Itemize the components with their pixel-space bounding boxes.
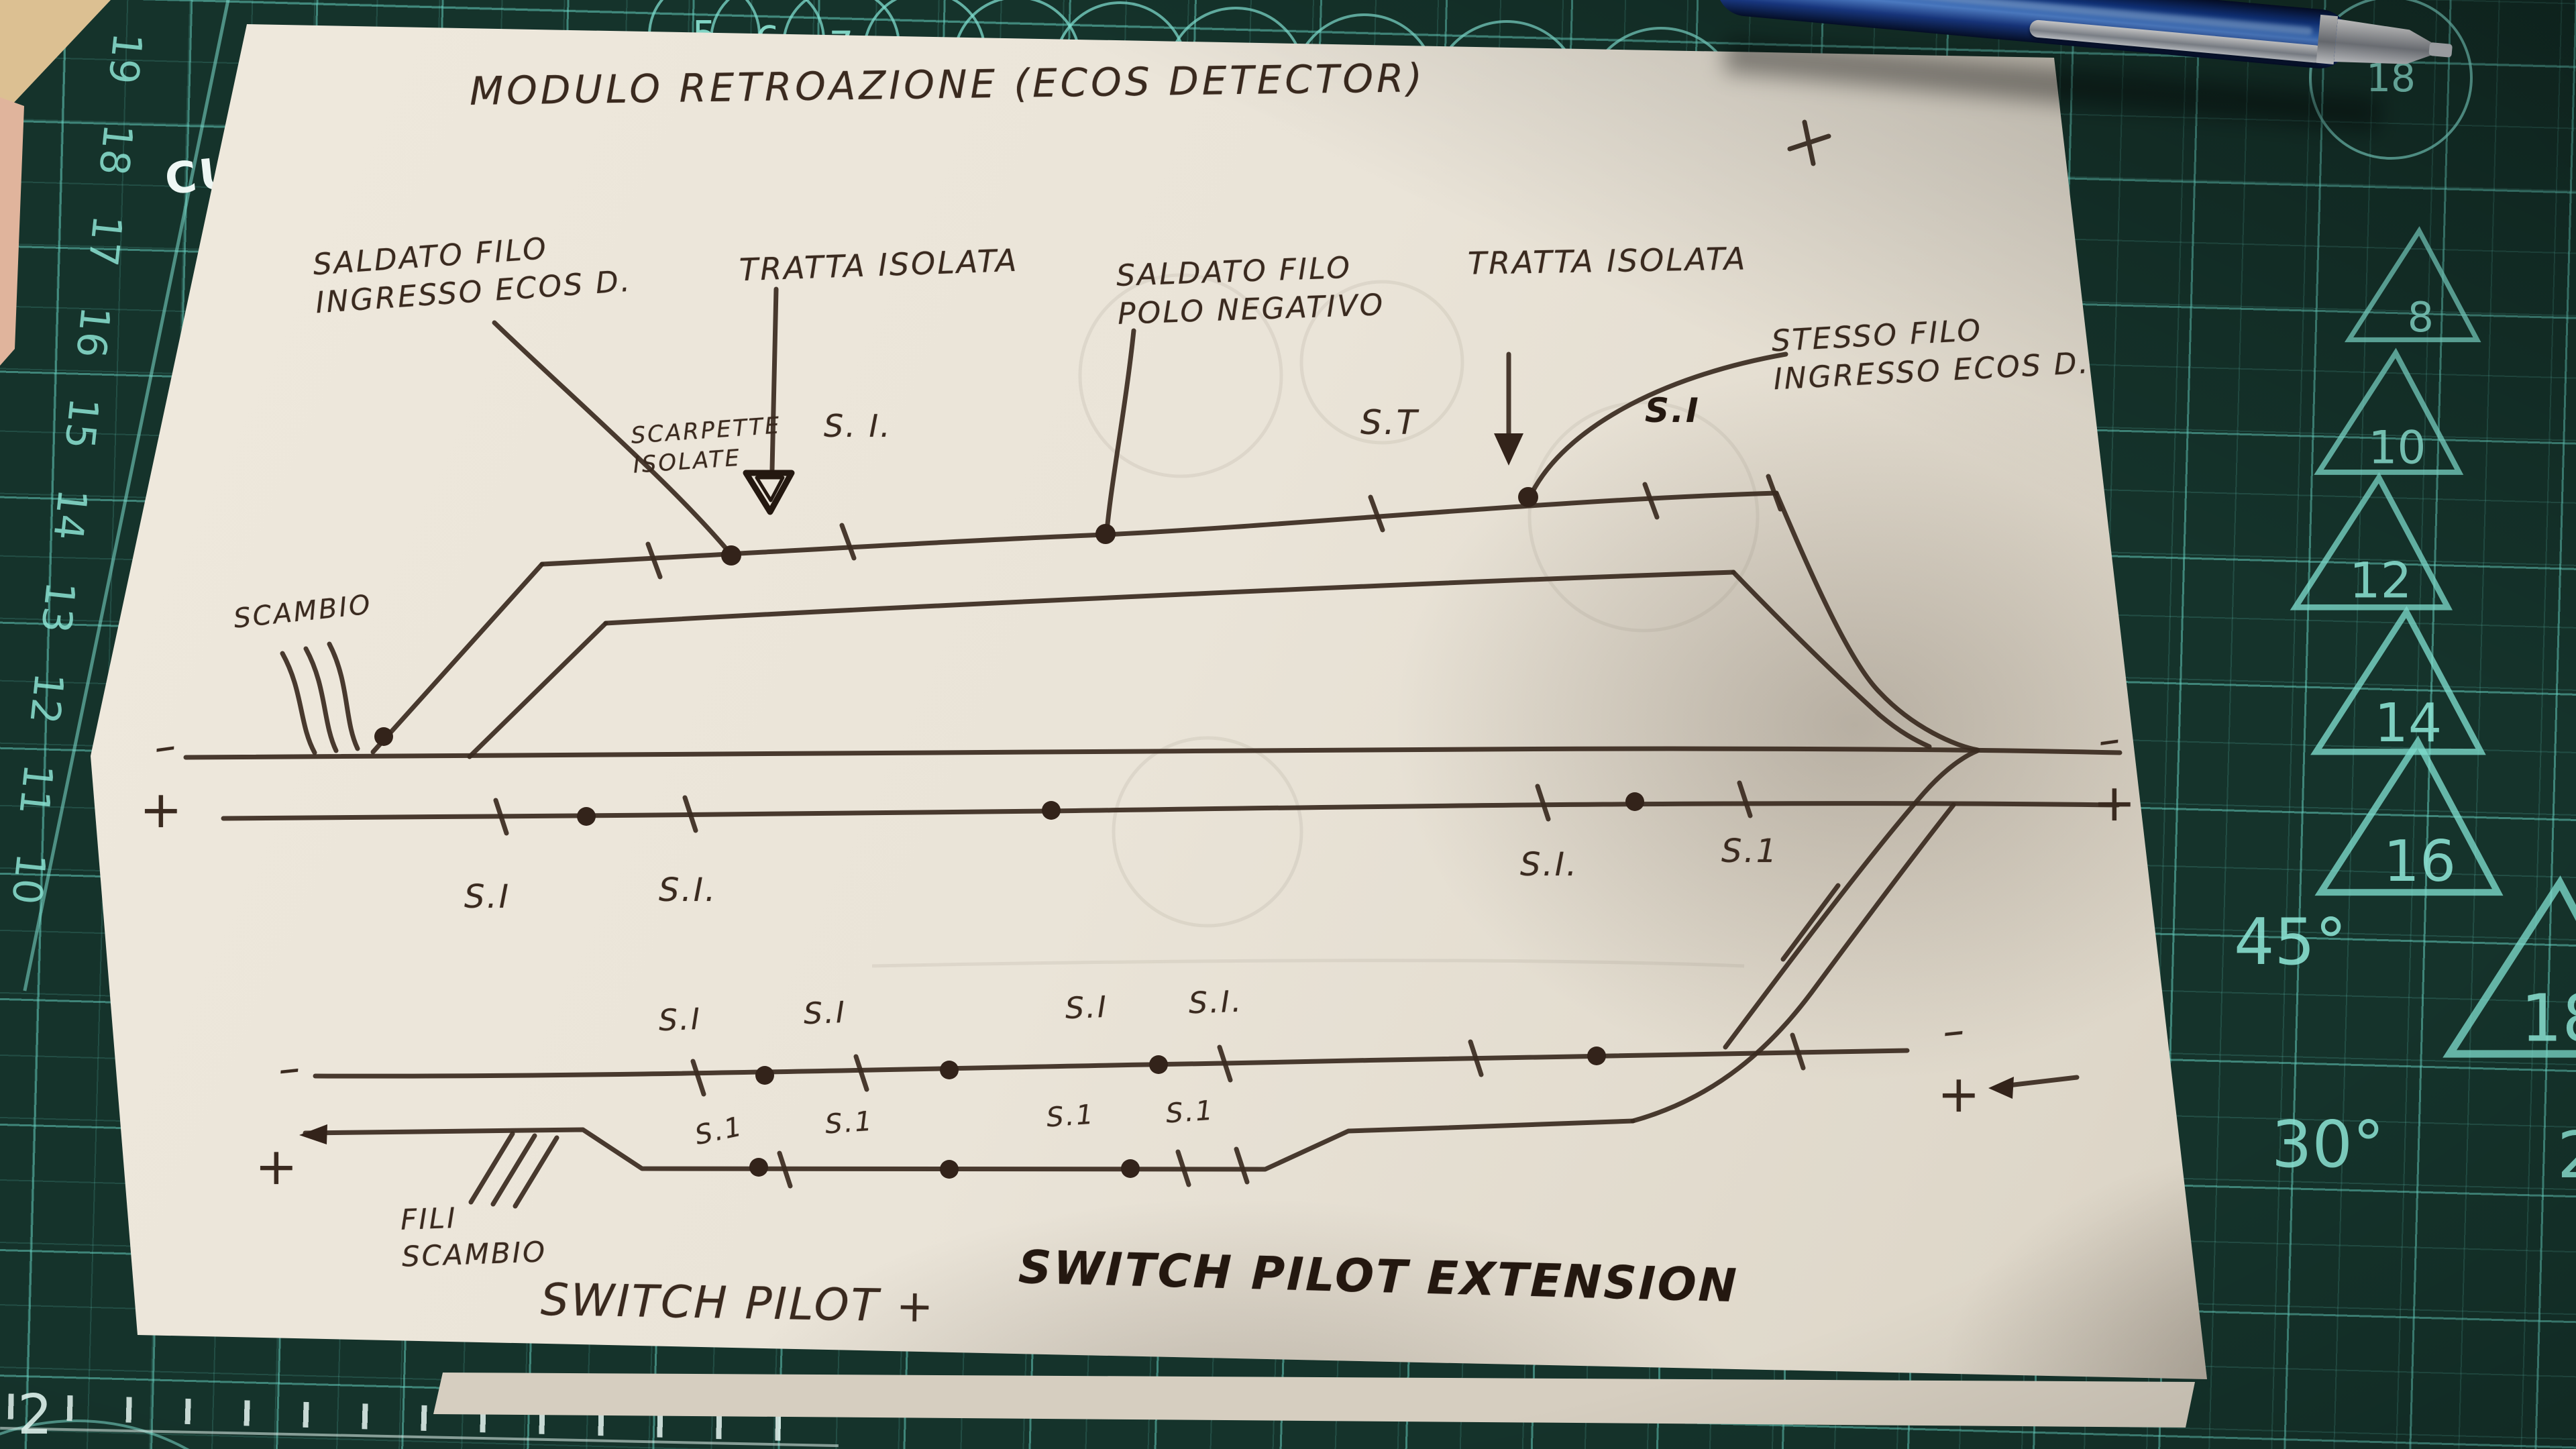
mat-left-number-19: 19 bbox=[99, 30, 151, 86]
sign-plus-r4-left: + bbox=[255, 1134, 300, 1200]
mat-angle-label-45: 45° bbox=[2234, 906, 2347, 979]
label-si-top-1: S. I. bbox=[824, 407, 892, 447]
mat-left-number-15: 15 bbox=[55, 395, 107, 451]
mat-angle-label-30: 30° bbox=[2271, 1108, 2384, 1182]
sign-plus-main-left: + bbox=[140, 777, 184, 843]
label-si-r3-4: S.I. bbox=[1188, 983, 1244, 1023]
label-si-r4-4: S.1 bbox=[1165, 1093, 1216, 1132]
label-scarpette-isolate: SCARPETTE ISOLATE bbox=[630, 411, 784, 480]
label-tratta-isolata-right: TRATTA ISOLATA bbox=[1468, 239, 1748, 284]
label-si-r3-1: S.I bbox=[658, 1000, 702, 1040]
mat-triangle-10: 10 bbox=[2311, 345, 2465, 484]
mat-left-number-13: 13 bbox=[32, 579, 84, 635]
mat-left-number-11: 11 bbox=[9, 761, 62, 817]
label-fili-scambio: FILI SCAMBIO bbox=[400, 1197, 547, 1275]
label-si-r4-3: S.1 bbox=[1045, 1097, 1096, 1136]
label-si-top-2: S.I bbox=[1645, 389, 1701, 433]
label-saldato-filo-polo-negativo: SALDATO FILO POLO NEGATIVO bbox=[1116, 248, 1385, 333]
svg-text:18: 18 bbox=[2521, 980, 2576, 1056]
tick-marks bbox=[496, 476, 1803, 1186]
mat-triangle-8: 8 bbox=[2342, 224, 2483, 351]
pen-tip bbox=[2334, 19, 2438, 70]
label-si-r4-2: S.1 bbox=[824, 1104, 875, 1142]
label-si-bus-4: S.1 bbox=[1721, 830, 1778, 872]
mat-left-number-14: 14 bbox=[44, 486, 96, 542]
sign-plus-main-right: + bbox=[2093, 770, 2138, 837]
mat-triangle-18: 18 bbox=[2438, 872, 2576, 1069]
mat-left-number-16: 16 bbox=[66, 304, 119, 360]
photo-model-railway-sketch: CU 567891011121314 19181716151413121110 … bbox=[0, 0, 2576, 1449]
label-st-top: S.T bbox=[1360, 401, 1419, 445]
isolated-section-marker-icon bbox=[746, 473, 792, 512]
mat-left-number-12: 12 bbox=[20, 670, 72, 726]
plus-cross-mark bbox=[1790, 122, 1829, 164]
switch-wires bbox=[282, 644, 557, 1206]
pen-nub bbox=[2428, 42, 2453, 58]
sign-plus-r4-right: + bbox=[1937, 1061, 1982, 1128]
label-si-bus-1: S.I bbox=[464, 876, 511, 918]
label-si-r3-3: S.I bbox=[1065, 988, 1109, 1028]
mat-left-number-10: 10 bbox=[2, 851, 54, 906]
mat-left-number-17: 17 bbox=[78, 213, 131, 268]
caption-switch-pilot: SWITCH PILOT + bbox=[540, 1271, 936, 1336]
mat-left-number-18: 18 bbox=[89, 121, 142, 177]
label-si-bus-3: S.I. bbox=[1520, 844, 1578, 885]
mat-triangle-12: 12 bbox=[2287, 470, 2455, 620]
mat-angle-label-2: 2 bbox=[2557, 1119, 2576, 1193]
leader-lines bbox=[494, 289, 2077, 1085]
label-si-bus-2: S.I. bbox=[659, 869, 717, 911]
label-si-r3-2: S.I bbox=[803, 994, 847, 1033]
svg-text:10: 10 bbox=[2369, 421, 2426, 474]
pencil-ghost-traces bbox=[872, 275, 1758, 966]
svg-text:8: 8 bbox=[2408, 293, 2434, 341]
svg-text:12: 12 bbox=[2349, 553, 2412, 610]
